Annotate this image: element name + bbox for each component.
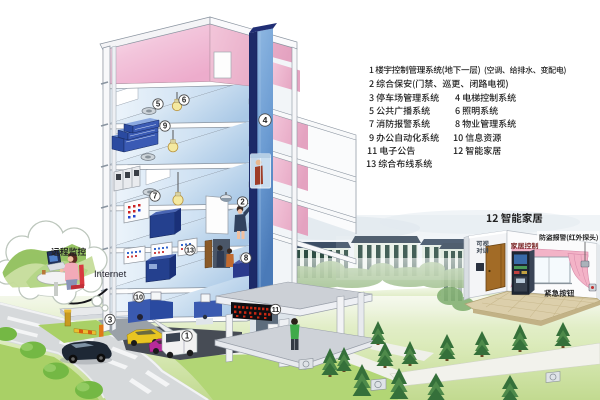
svg-text:3: 3 <box>108 315 113 324</box>
svg-text:Internet: Internet <box>94 269 127 280</box>
svg-text:10: 10 <box>135 293 143 302</box>
svg-text:6: 6 <box>182 96 187 105</box>
svg-text:5: 5 <box>156 100 161 109</box>
svg-text:1: 1 <box>185 332 190 341</box>
svg-text:13: 13 <box>186 246 194 255</box>
svg-text:11: 11 <box>272 305 280 314</box>
svg-text:7: 7 <box>153 192 157 201</box>
svg-text:9: 9 <box>163 122 168 131</box>
svg-text:2: 2 <box>240 198 245 207</box>
svg-text:4: 4 <box>263 115 268 125</box>
svg-text:8: 8 <box>244 254 249 263</box>
